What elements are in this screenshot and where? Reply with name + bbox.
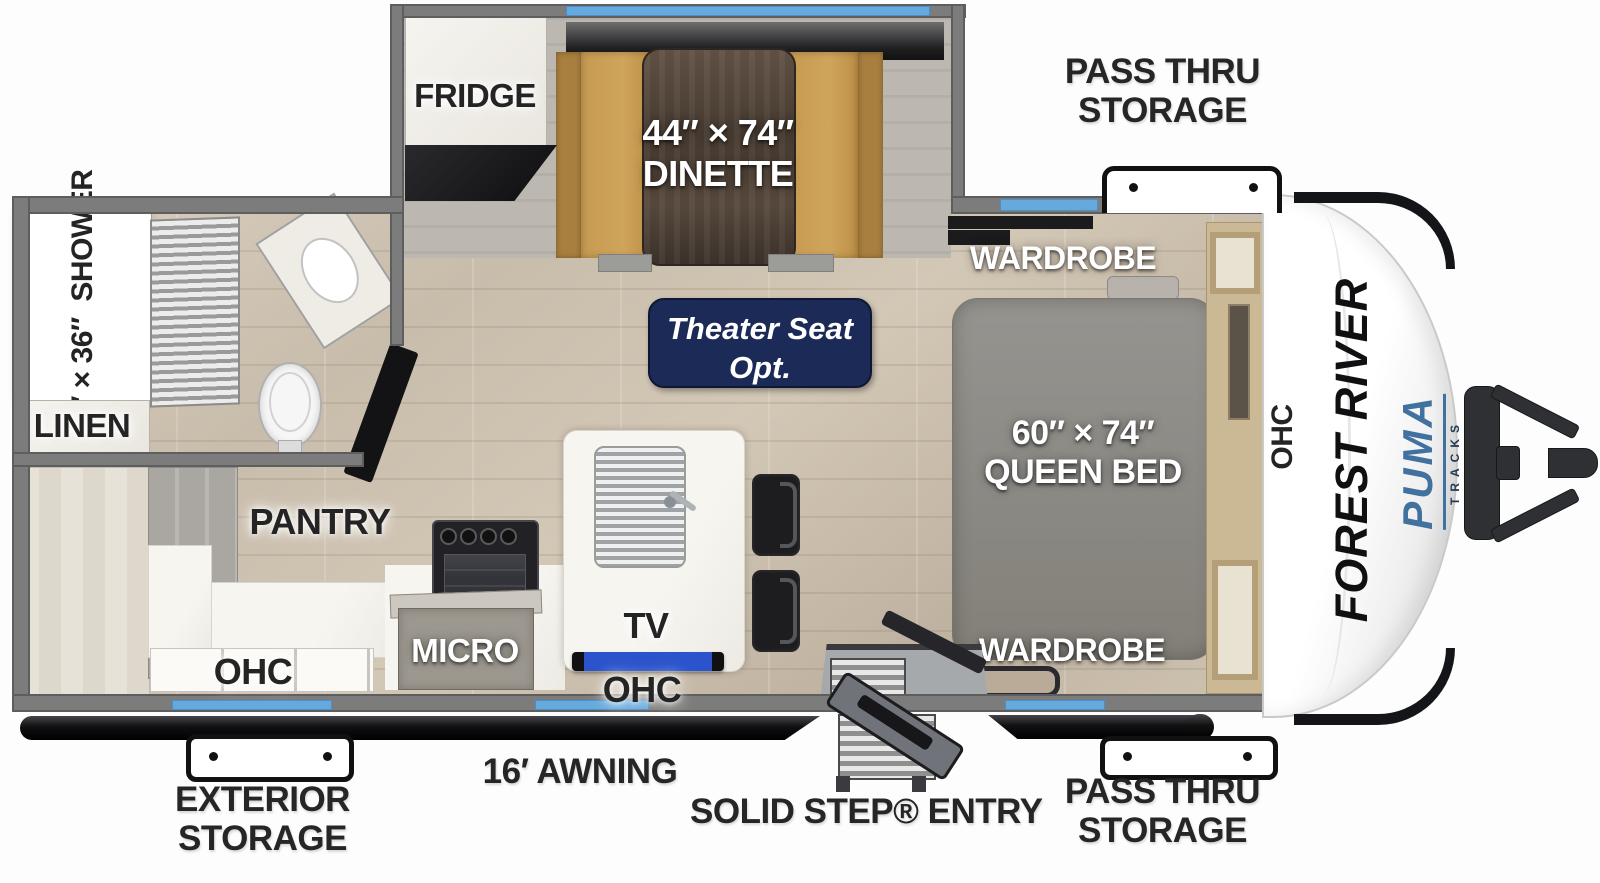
hitch-jack <box>1496 446 1520 480</box>
pass-thru-top-label: PASS THRU STORAGE <box>1040 52 1285 130</box>
pantry-label: PANTRY <box>240 502 400 542</box>
exterior-storage-label: EXTERIOR STORAGE <box>150 780 375 858</box>
rv-floorplan: 44″ × 74″ DINETTE FRIDGE 24″ × 36″ SHOWE… <box>0 0 1600 883</box>
sink-bowl <box>289 227 371 314</box>
brand-model: PUMA <box>1394 394 1446 530</box>
brand-manufacturer: FOREST RIVER <box>1326 278 1378 623</box>
rear-wardrobe-cabinet <box>16 467 150 705</box>
dinette-bench-left-back <box>556 52 581 258</box>
storage-screw-1 <box>209 752 218 761</box>
hitch-arm-top <box>1490 383 1581 439</box>
ohc-front-label: OHC <box>1266 404 1300 469</box>
kitchen-counter <box>205 582 402 658</box>
pass-thru-top-screw-1 <box>1129 183 1138 192</box>
stool-2 <box>752 570 800 652</box>
brand-series: TRACKS <box>1448 394 1462 530</box>
linen-label: LINEN <box>16 408 148 445</box>
stool-2-back <box>780 578 797 644</box>
headboard-nightstand-bottom <box>1212 560 1258 680</box>
awning-label: 16′ AWNING <box>460 752 700 791</box>
slide-right-wall <box>951 4 965 214</box>
wardrobe-top-label: WARDROBE <box>953 240 1173 276</box>
top-wall-left <box>12 196 404 214</box>
stool-1 <box>752 474 800 556</box>
stool-1-back <box>780 482 797 548</box>
bed-size-text: 60″ × 74″ <box>952 414 1214 453</box>
queen-bed-label: 60″ × 74″ QUEEN BED <box>952 414 1214 492</box>
dinette-label: 44″ × 74″ DINETTE <box>630 112 806 194</box>
wardrobe-bottom-label: WARDROBE <box>962 632 1182 668</box>
ohc-center-label: OHC <box>600 670 684 710</box>
fridge-label: FRIDGE <box>405 78 545 115</box>
headboard-slot <box>1228 304 1250 420</box>
kitchen-counter-return <box>148 545 212 658</box>
shower-door <box>150 216 240 407</box>
bathroom-wall <box>12 452 364 467</box>
dinette-size-text: 44″ × 74″ <box>630 112 806 153</box>
cap-trim-bottom <box>1294 648 1455 725</box>
burner-2 <box>460 528 477 545</box>
entry-label: SOLID STEP® ENTRY <box>690 792 1042 831</box>
theater-seat-badge: Theater Seat Opt. <box>648 298 872 388</box>
slide-window <box>566 6 930 16</box>
step-foot-right <box>912 776 926 792</box>
wardrobe-bench <box>1107 276 1179 300</box>
exterior-storage-door <box>186 734 354 782</box>
pass-thru-bottom-screw-1 <box>1123 752 1132 761</box>
tv-label: TV <box>606 606 686 646</box>
brand-model-block: PUMA TRACKS <box>1394 394 1462 530</box>
pass-thru-bottom-screw-2 <box>1243 752 1252 761</box>
pass-thru-bottom-label: PASS THRU STORAGE <box>1040 772 1285 850</box>
hitch-arm-bottom <box>1490 487 1581 543</box>
toilet <box>258 362 322 448</box>
awning-bar-left <box>36 716 820 740</box>
pass-thru-top-screw-2 <box>1249 183 1258 192</box>
slide-left-wall <box>390 4 404 346</box>
storage-screw-2 <box>323 752 332 761</box>
hitch-coupler <box>1464 386 1500 540</box>
bed-name-text: QUEEN BED <box>952 453 1214 492</box>
shower-name-text: SHOWER <box>66 170 99 302</box>
cap-trim-top <box>1294 192 1455 269</box>
burner-3 <box>480 528 497 545</box>
burner-1 <box>440 528 457 545</box>
micro-label: MICRO <box>398 632 532 670</box>
theater-line1: Theater Seat <box>650 310 870 349</box>
bottom-window-entry <box>1005 700 1105 710</box>
ohc-left-label: OHC <box>193 652 313 692</box>
dinette-step-trim-left <box>598 254 652 272</box>
hitch-tongue <box>1548 448 1598 478</box>
slide-hardware-bar-1 <box>948 216 1093 229</box>
bedroom-top-window <box>1000 199 1098 211</box>
toilet-lid <box>269 372 311 432</box>
pass-thru-door-top <box>1102 166 1282 213</box>
step-foot-left <box>836 776 850 792</box>
dinette-bench-right-back <box>858 52 883 258</box>
burner-4 <box>500 528 517 545</box>
bottom-window-left <box>172 700 332 710</box>
dinette-name-text: DINETTE <box>630 153 806 194</box>
theater-line2: Opt. <box>650 349 870 388</box>
dinette-step-trim-right <box>768 254 834 272</box>
headboard-nightstand-top <box>1210 232 1260 294</box>
